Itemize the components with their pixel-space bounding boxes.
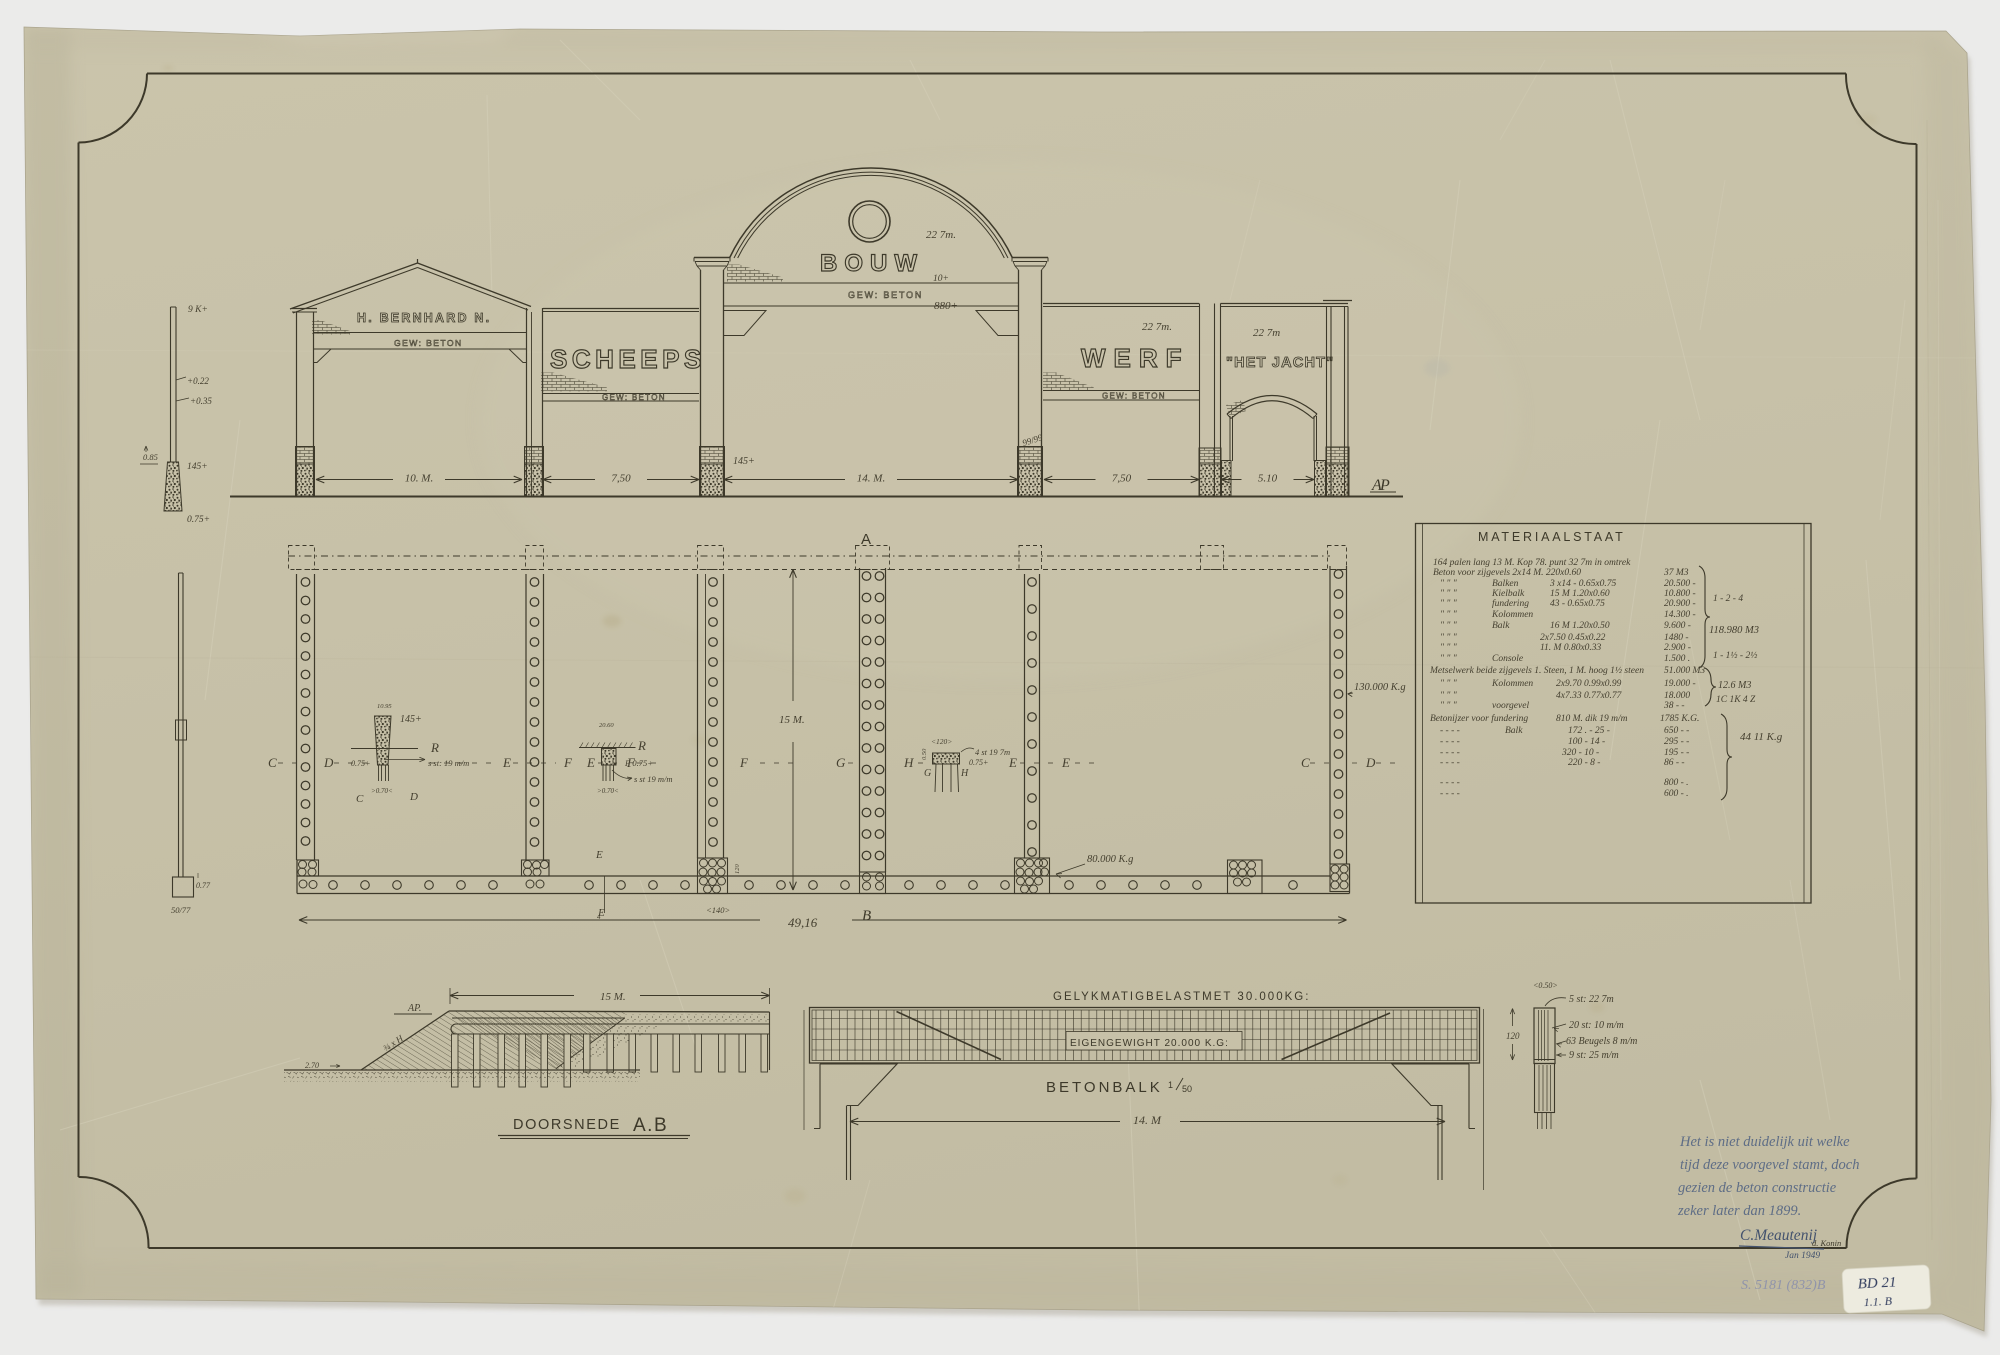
svg-text:600 - .: 600 - . [1664, 789, 1689, 799]
svg-text:43 - 0.65x0.75: 43 - 0.65x0.75 [1550, 599, 1605, 609]
svg-text:" " ": " " " [1440, 621, 1458, 631]
svg-text:E: E [1008, 755, 1017, 770]
svg-text:" " ": " " " [1440, 701, 1458, 711]
svg-text:voorgevel: voorgevel [1492, 701, 1529, 711]
svg-text:7,50: 7,50 [611, 473, 631, 485]
svg-text:120: 120 [734, 864, 741, 875]
svg-text:145+: 145+ [187, 462, 208, 472]
svg-text:16 M 1.20x0.50: 16 M 1.20x0.50 [1550, 621, 1610, 631]
svg-text:0.75+: 0.75+ [969, 758, 988, 767]
svg-text:164 palen lang 13 M. Kop 78. p: 164 palen lang 13 M. Kop 78. punt 32 7m … [1433, 558, 1631, 568]
svg-text:DOORSNEDE: DOORSNEDE [513, 1117, 621, 1133]
svg-text:S. 5181 (832)B: S. 5181 (832)B [1741, 1278, 1826, 1293]
svg-text:9 st: 25 m/m: 9 st: 25 m/m [1569, 1050, 1619, 1061]
svg-text:G: G [924, 768, 931, 779]
svg-text:<140>: <140> [706, 905, 730, 915]
svg-text:220 - 8 -: 220 - 8 - [1568, 758, 1600, 768]
svg-text:- - - -: - - - - [1440, 726, 1460, 736]
svg-text:145+: 145+ [733, 456, 755, 467]
svg-text:tijd deze voorgevel stamt, doc: tijd deze voorgevel stamt, doch [1680, 1157, 1859, 1173]
svg-text:50/77: 50/77 [171, 905, 191, 915]
svg-text:9 K+: 9 K+ [188, 305, 208, 315]
svg-text:D: D [409, 791, 418, 803]
svg-text:172 . - 25 -: 172 . - 25 - [1568, 726, 1610, 736]
svg-text:zeker later dan 1899.: zeker later dan 1899. [1677, 1203, 1801, 1219]
svg-text:810 M. dik 19 m/m: 810 M. dik 19 m/m [1556, 714, 1628, 724]
svg-text:+0.22: +0.22 [187, 376, 209, 386]
svg-text:5 st: 22 7m: 5 st: 22 7m [1569, 994, 1614, 1005]
svg-text:E: E [1061, 755, 1070, 770]
svg-text:650 - -: 650 - - [1664, 726, 1689, 736]
svg-text:0.50: 0.50 [921, 748, 928, 760]
svg-text:" " ": " " " [1440, 579, 1458, 589]
svg-text:20 st: 10 m/m: 20 st: 10 m/m [1569, 1020, 1624, 1031]
svg-text:118.980 M3: 118.980 M3 [1709, 625, 1759, 636]
svg-text:1.500 .: 1.500 . [1664, 654, 1690, 664]
svg-text:5.10: 5.10 [1258, 473, 1278, 485]
svg-text:" " ": " " " [1440, 610, 1458, 620]
svg-text:295 - -: 295 - - [1664, 737, 1689, 747]
svg-text:C.Meautenij: C.Meautenij [1740, 1227, 1817, 1244]
svg-text:22 7m.: 22 7m. [926, 229, 956, 241]
svg-text:d. Konin: d. Konin [1812, 1238, 1841, 1248]
svg-text:GEW: BETON: GEW: BETON [848, 290, 923, 300]
svg-text:145+: 145+ [400, 714, 422, 725]
svg-text:A.B: A.B [633, 1115, 668, 1136]
svg-text:44 11 K.g: 44 11 K.g [1740, 731, 1783, 743]
svg-text:H. BERNHARD N.: H. BERNHARD N. [357, 311, 491, 325]
svg-text:R: R [637, 738, 646, 753]
svg-text:1 - 2 - 4: 1 - 2 - 4 [1713, 594, 1743, 604]
svg-text:<120>: <120> [931, 737, 952, 746]
svg-text:320 - 10 -: 320 - 10 - [1561, 748, 1599, 758]
svg-text:880+: 880+ [934, 300, 958, 312]
svg-text:- - - -: - - - - [1440, 758, 1460, 768]
svg-text:22 7m.: 22 7m. [1142, 321, 1172, 333]
svg-text:Kolommen: Kolommen [1491, 610, 1533, 620]
svg-text:0.85: 0.85 [143, 452, 158, 462]
svg-text:E: E [595, 849, 603, 861]
svg-text:37 M3: 37 M3 [1663, 568, 1689, 578]
svg-text:GEW: BETON: GEW: BETON [1102, 392, 1166, 401]
svg-text:18.000: 18.000 [1664, 691, 1690, 701]
svg-text:" " ": " " " [1440, 654, 1458, 664]
svg-text:WERF: WERF [1081, 343, 1190, 373]
svg-text:10. M.: 10. M. [405, 473, 433, 485]
svg-text:0.75+: 0.75+ [351, 759, 370, 768]
svg-text:38 - -: 38 - - [1663, 701, 1685, 711]
svg-text:"HET JACHT": "HET JACHT" [1226, 355, 1334, 371]
svg-text:G: G [836, 755, 846, 770]
svg-text:BD 21: BD 21 [1857, 1274, 1897, 1292]
svg-text:14.300 -: 14.300 - [1664, 610, 1696, 620]
svg-text:1 - 1½ - 2½: 1 - 1½ - 2½ [1713, 650, 1757, 661]
svg-text:Console: Console [1492, 654, 1523, 664]
svg-text:F 0.75+: F 0.75+ [624, 758, 653, 768]
svg-text:2x7.50 0.45x0.22: 2x7.50 0.45x0.22 [1540, 633, 1606, 643]
svg-text:GEW: BETON: GEW: BETON [602, 393, 666, 402]
svg-text:" " ": " " " [1440, 679, 1458, 689]
svg-text:195 - -: 195 - - [1664, 748, 1689, 758]
svg-text:2x9.70 0.99x0.99: 2x9.70 0.99x0.99 [1556, 679, 1622, 689]
svg-text:15 M 1.20x0.60: 15 M 1.20x0.60 [1550, 589, 1610, 599]
svg-text:- - - -: - - - - [1440, 737, 1460, 747]
svg-text:4x7.33 0.77x0.77: 4x7.33 0.77x0.77 [1556, 691, 1623, 701]
svg-text:Kolommen: Kolommen [1491, 679, 1533, 689]
svg-text:7,50: 7,50 [1112, 473, 1132, 485]
svg-text:<0.50>: <0.50> [1533, 981, 1558, 990]
svg-text:C: C [268, 755, 277, 770]
svg-text:100 - 14 -: 100 - 14 - [1568, 737, 1605, 747]
svg-text:Jan 1949: Jan 1949 [1785, 1251, 1820, 1261]
svg-text:R: R [430, 740, 439, 755]
svg-text:>0.70<: >0.70< [597, 787, 619, 795]
svg-text:Balk: Balk [1492, 621, 1510, 631]
svg-text:- - - -: - - - - [1440, 778, 1460, 788]
svg-text:H: H [903, 755, 914, 770]
svg-text:E: E [586, 755, 595, 770]
svg-text:2.900 -: 2.900 - [1664, 643, 1691, 653]
svg-text:120: 120 [1506, 1031, 1520, 1041]
svg-text:Balk: Balk [1505, 726, 1523, 736]
svg-text:GEW: BETON: GEW: BETON [394, 338, 463, 348]
svg-text:SCHEEPS: SCHEEPS [550, 344, 706, 374]
svg-text:1C 1K 4 Z: 1C 1K 4 Z [1716, 695, 1756, 705]
svg-text:H: H [960, 768, 969, 779]
svg-text:E: E [597, 907, 605, 919]
svg-text:+0.35: +0.35 [190, 396, 212, 406]
svg-text:" " ": " " " [1440, 599, 1458, 609]
svg-text:800 - .: 800 - . [1664, 778, 1689, 788]
svg-text:E: E [502, 755, 511, 770]
svg-text:20.500 -: 20.500 - [1664, 579, 1696, 589]
svg-text:49,16: 49,16 [788, 915, 818, 930]
svg-text:15 M.: 15 M. [779, 714, 805, 726]
svg-text:F: F [739, 755, 749, 770]
svg-text:10.800 -: 10.800 - [1664, 589, 1696, 599]
svg-text:1785 K.G.: 1785 K.G. [1660, 714, 1699, 724]
svg-text:" " ": " " " [1440, 691, 1458, 701]
svg-text:s st: 19 m/m: s st: 19 m/m [428, 758, 469, 768]
svg-text:- - - -: - - - - [1440, 789, 1460, 799]
svg-text:F: F [563, 755, 573, 770]
svg-text:0.75+: 0.75+ [187, 515, 210, 525]
svg-text:- - - -: - - - - [1440, 748, 1460, 758]
svg-text:D: D [323, 755, 334, 770]
svg-text:10+: 10+ [933, 274, 949, 284]
svg-text:" " ": " " " [1440, 633, 1458, 643]
svg-text:15 M.: 15 M. [600, 991, 626, 1003]
svg-text:D: D [1365, 755, 1376, 770]
svg-text:11. M 0.80x0.33: 11. M 0.80x0.33 [1540, 643, 1602, 653]
svg-text:1: 1 [1168, 1080, 1173, 1090]
svg-text:B: B [862, 908, 871, 924]
svg-text:9.600 -: 9.600 - [1664, 621, 1691, 631]
svg-text:10.95: 10.95 [377, 703, 392, 710]
svg-text:>0.70<: >0.70< [371, 787, 393, 795]
svg-text:Het is niet duidelijk uit welk: Het is niet duidelijk uit welke [1679, 1134, 1850, 1150]
svg-text:gezien de beton constructie: gezien de beton constructie [1678, 1180, 1837, 1196]
svg-text:" " ": " " " [1440, 589, 1458, 599]
svg-text:C: C [356, 793, 364, 805]
svg-text:80.000 K.g: 80.000 K.g [1087, 854, 1133, 865]
svg-text:fundering: fundering [1492, 598, 1529, 609]
svg-text:Betonijzer voor fundering: Betonijzer voor fundering [1430, 713, 1528, 724]
svg-text:Kielbalk: Kielbalk [1491, 589, 1525, 599]
svg-text:s st 19 m/m: s st 19 m/m [634, 774, 673, 784]
svg-text:BOUW: BOUW [820, 250, 924, 277]
svg-text:GELYKMATIGBELASTMET 30.000KG:: GELYKMATIGBELASTMET 30.000KG: [1053, 991, 1310, 1003]
svg-text:4 st 19 7m: 4 st 19 7m [975, 747, 1010, 757]
svg-text:Balken: Balken [1492, 579, 1519, 589]
svg-text:3 x14 - 0.65x0.75: 3 x14 - 0.65x0.75 [1549, 579, 1616, 589]
svg-text:EIGENGEWIGHT 20.000 K.G:: EIGENGEWIGHT 20.000 K.G: [1070, 1038, 1229, 1049]
svg-text:19.000 -: 19.000 - [1664, 679, 1696, 689]
svg-text:AP.: AP. [407, 1003, 421, 1014]
svg-text:BETONBALK: BETONBALK [1046, 1079, 1163, 1096]
svg-text:Metselwerk beide zijgevels 1.: Metselwerk beide zijgevels 1. Steen, 1 M… [1429, 665, 1644, 676]
svg-text:20.900 -: 20.900 - [1664, 599, 1696, 609]
svg-text:22 7m: 22 7m [1253, 327, 1280, 339]
svg-text:12.6 M3: 12.6 M3 [1718, 680, 1751, 691]
svg-text:14. M.: 14. M. [857, 473, 885, 485]
svg-text:MATERIAALSTAAT: MATERIAALSTAAT [1478, 530, 1626, 544]
svg-text:130.000 K.g: 130.000 K.g [1354, 682, 1406, 693]
svg-text:C: C [1301, 755, 1310, 770]
svg-text:1480 -: 1480 - [1664, 633, 1689, 643]
svg-text:" " ": " " " [1440, 643, 1458, 653]
svg-text:0.77: 0.77 [196, 881, 211, 890]
svg-text:86 - -: 86 - - [1664, 758, 1685, 768]
svg-text:14. M: 14. M [1133, 1113, 1162, 1127]
svg-text:Beton voor zijgevels 2x14 M. 2: Beton voor zijgevels 2x14 M. 220x0.60 [1433, 568, 1581, 578]
svg-text:63 Beugels 8 m/m: 63 Beugels 8 m/m [1566, 1036, 1637, 1047]
svg-text:2.70: 2.70 [305, 1061, 319, 1070]
svg-text:50: 50 [1182, 1084, 1192, 1094]
svg-text:20.60: 20.60 [599, 722, 614, 729]
svg-text:1.1. B: 1.1. B [1863, 1294, 1893, 1309]
svg-text:A: A [861, 531, 871, 548]
